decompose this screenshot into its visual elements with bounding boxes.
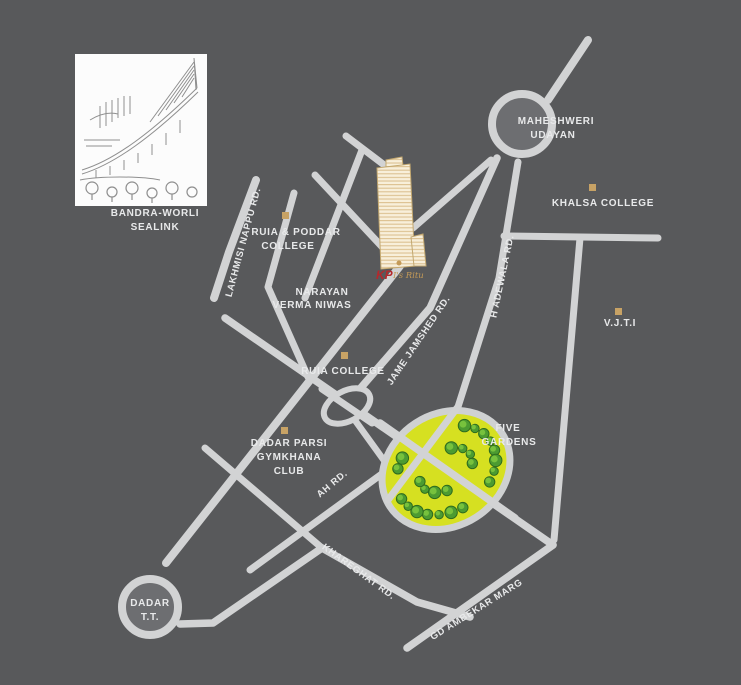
sealink-inset-image [75,54,207,206]
khalsa-label: KHALSA COLLEGE [552,198,654,209]
maheshweri-label-line2: UDAYAN [530,130,575,141]
vjti-label: V.J.T.I [604,318,636,329]
logo-prefix: KP [376,268,394,282]
location-map: KP I's Ritu BANDRA-WORL [0,0,741,685]
ruia-poddar-label-line1: RUIA & PODDAR [251,227,340,238]
marker-dadar-parsi [281,427,288,434]
dadar-tt-label-line2: T.T. [141,612,159,623]
narayan-label-line1: NARAYAN [295,287,348,298]
logo-crest-icon [397,261,402,266]
dadar-parsi-label-line3: CLUB [274,466,305,477]
oval-roundabout [318,381,376,431]
ruia-poddar-label-line2: COLLEGE [261,241,314,252]
marker-vjti [615,308,622,315]
sealink-caption-line1: BANDRA-WORLI [111,208,199,219]
map-canvas: KP I's Ritu BANDRA-WORL [0,0,741,685]
five-gardens-label-line2: GARDENS [482,437,537,448]
logo-script: I's Ritu [392,271,424,281]
maheshweri-label-line1: MAHESHWERI [518,116,594,127]
dadar-tt-label-line1: DADAR [130,598,170,609]
dadar-parsi-label-line1: DADAR PARSI [251,438,327,449]
marker-ruia-college [341,352,348,359]
narayan-label-line2: VERMA NIWAS [273,300,352,311]
dadar-parsi-label-line2: GYMKHANA [257,452,322,463]
marker-ruia-poddar [282,212,289,219]
sealink-caption-line2: SEALINK [131,222,180,233]
marker-khalsa [589,184,596,191]
five-gardens-label-line1: FIVE [495,423,520,434]
ruia-college-label: RUIA COLLEGE [301,366,385,377]
